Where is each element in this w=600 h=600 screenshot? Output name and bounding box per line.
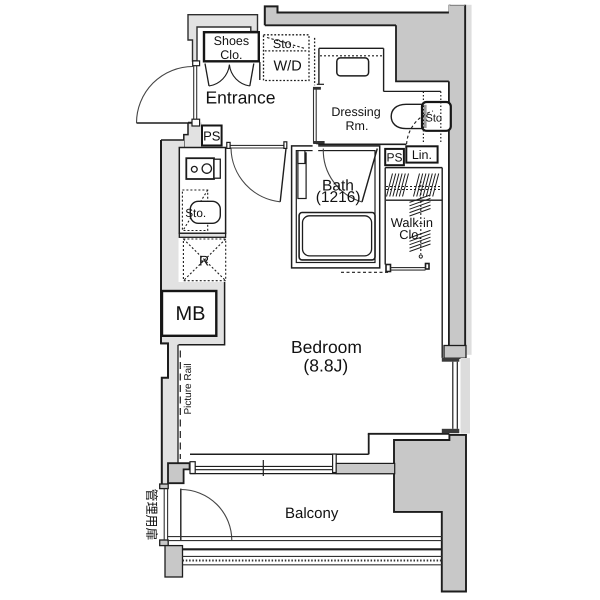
svg-text:Bedroom: Bedroom xyxy=(291,337,362,357)
svg-text:Shoes: Shoes xyxy=(214,34,249,48)
svg-text:Clo.: Clo. xyxy=(220,48,242,62)
svg-text:(1216): (1216) xyxy=(316,189,361,206)
svg-text:Picture Rail: Picture Rail xyxy=(183,363,194,414)
svg-text:W/D: W/D xyxy=(274,59,302,75)
svg-text:PS: PS xyxy=(386,151,402,165)
svg-text:Sto.: Sto. xyxy=(273,37,295,51)
svg-text:Sto: Sto xyxy=(426,113,443,125)
svg-text:(8.8J): (8.8J) xyxy=(303,356,348,376)
svg-text:Dressing: Dressing xyxy=(331,105,380,119)
svg-text:R: R xyxy=(199,253,209,269)
svg-text:Rm.: Rm. xyxy=(346,119,369,133)
svg-text:PS: PS xyxy=(203,129,221,144)
svg-text:管理用扉: 管理用扉 xyxy=(144,489,159,541)
svg-text:Sto.: Sto. xyxy=(185,206,206,220)
svg-text:Clo.: Clo. xyxy=(399,227,422,242)
svg-text:Balcony: Balcony xyxy=(285,505,339,522)
svg-text:Lin.: Lin. xyxy=(412,148,432,162)
svg-text:MB: MB xyxy=(176,303,206,325)
svg-text:Entrance: Entrance xyxy=(205,87,275,107)
